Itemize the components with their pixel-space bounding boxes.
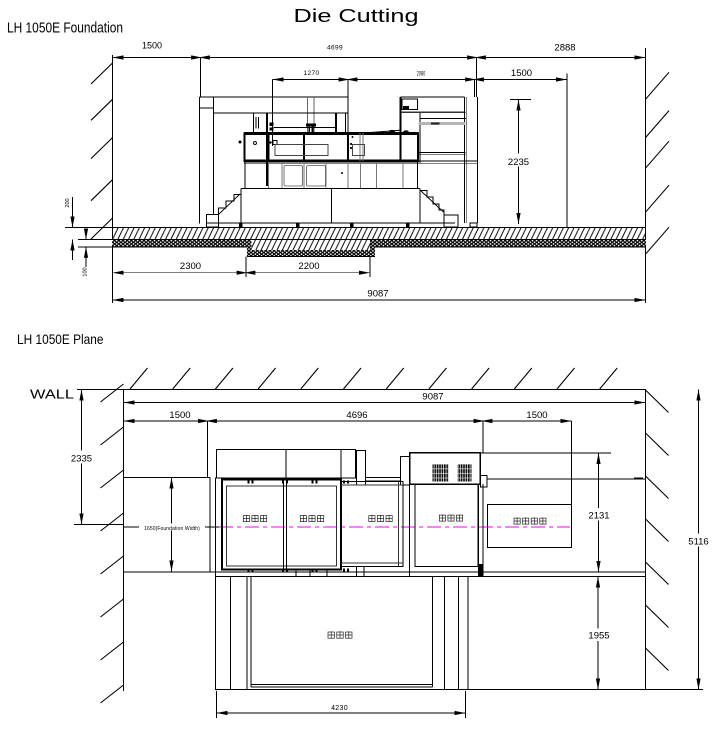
svg-text:4230: 4230: [331, 705, 348, 712]
svg-text:2888: 2888: [554, 43, 575, 54]
svg-text:LH 1050E Foundation: LH 1050E Foundation: [7, 21, 123, 37]
svg-text:Die Cutting: Die Cutting: [294, 6, 419, 26]
svg-text:5116: 5116: [688, 537, 708, 548]
svg-text:2300: 2300: [180, 261, 201, 272]
svg-text:1650(Foundation Width): 1650(Foundation Width): [144, 526, 200, 532]
svg-text:4696: 4696: [346, 410, 367, 421]
svg-text:4699: 4699: [327, 45, 343, 52]
svg-text:1500: 1500: [511, 68, 532, 79]
svg-text:100: 100: [83, 267, 89, 276]
svg-text:1500: 1500: [526, 410, 547, 421]
svg-text:2200: 2200: [298, 261, 319, 272]
svg-text:200: 200: [65, 198, 71, 207]
svg-text:2235: 2235: [508, 157, 529, 168]
svg-text:1500: 1500: [142, 41, 162, 51]
svg-text:LH 1050E Plane: LH 1050E Plane: [17, 331, 104, 347]
svg-text:9087: 9087: [367, 289, 388, 300]
svg-text:1270: 1270: [303, 70, 319, 77]
svg-text:9087: 9087: [422, 392, 443, 403]
svg-text:1955: 1955: [588, 631, 609, 642]
svg-text:2335: 2335: [71, 454, 92, 465]
svg-text:2080: 2080: [417, 72, 426, 78]
svg-text:1500: 1500: [169, 410, 190, 421]
svg-text:2131: 2131: [588, 511, 609, 522]
svg-text:WALL: WALL: [30, 387, 74, 402]
